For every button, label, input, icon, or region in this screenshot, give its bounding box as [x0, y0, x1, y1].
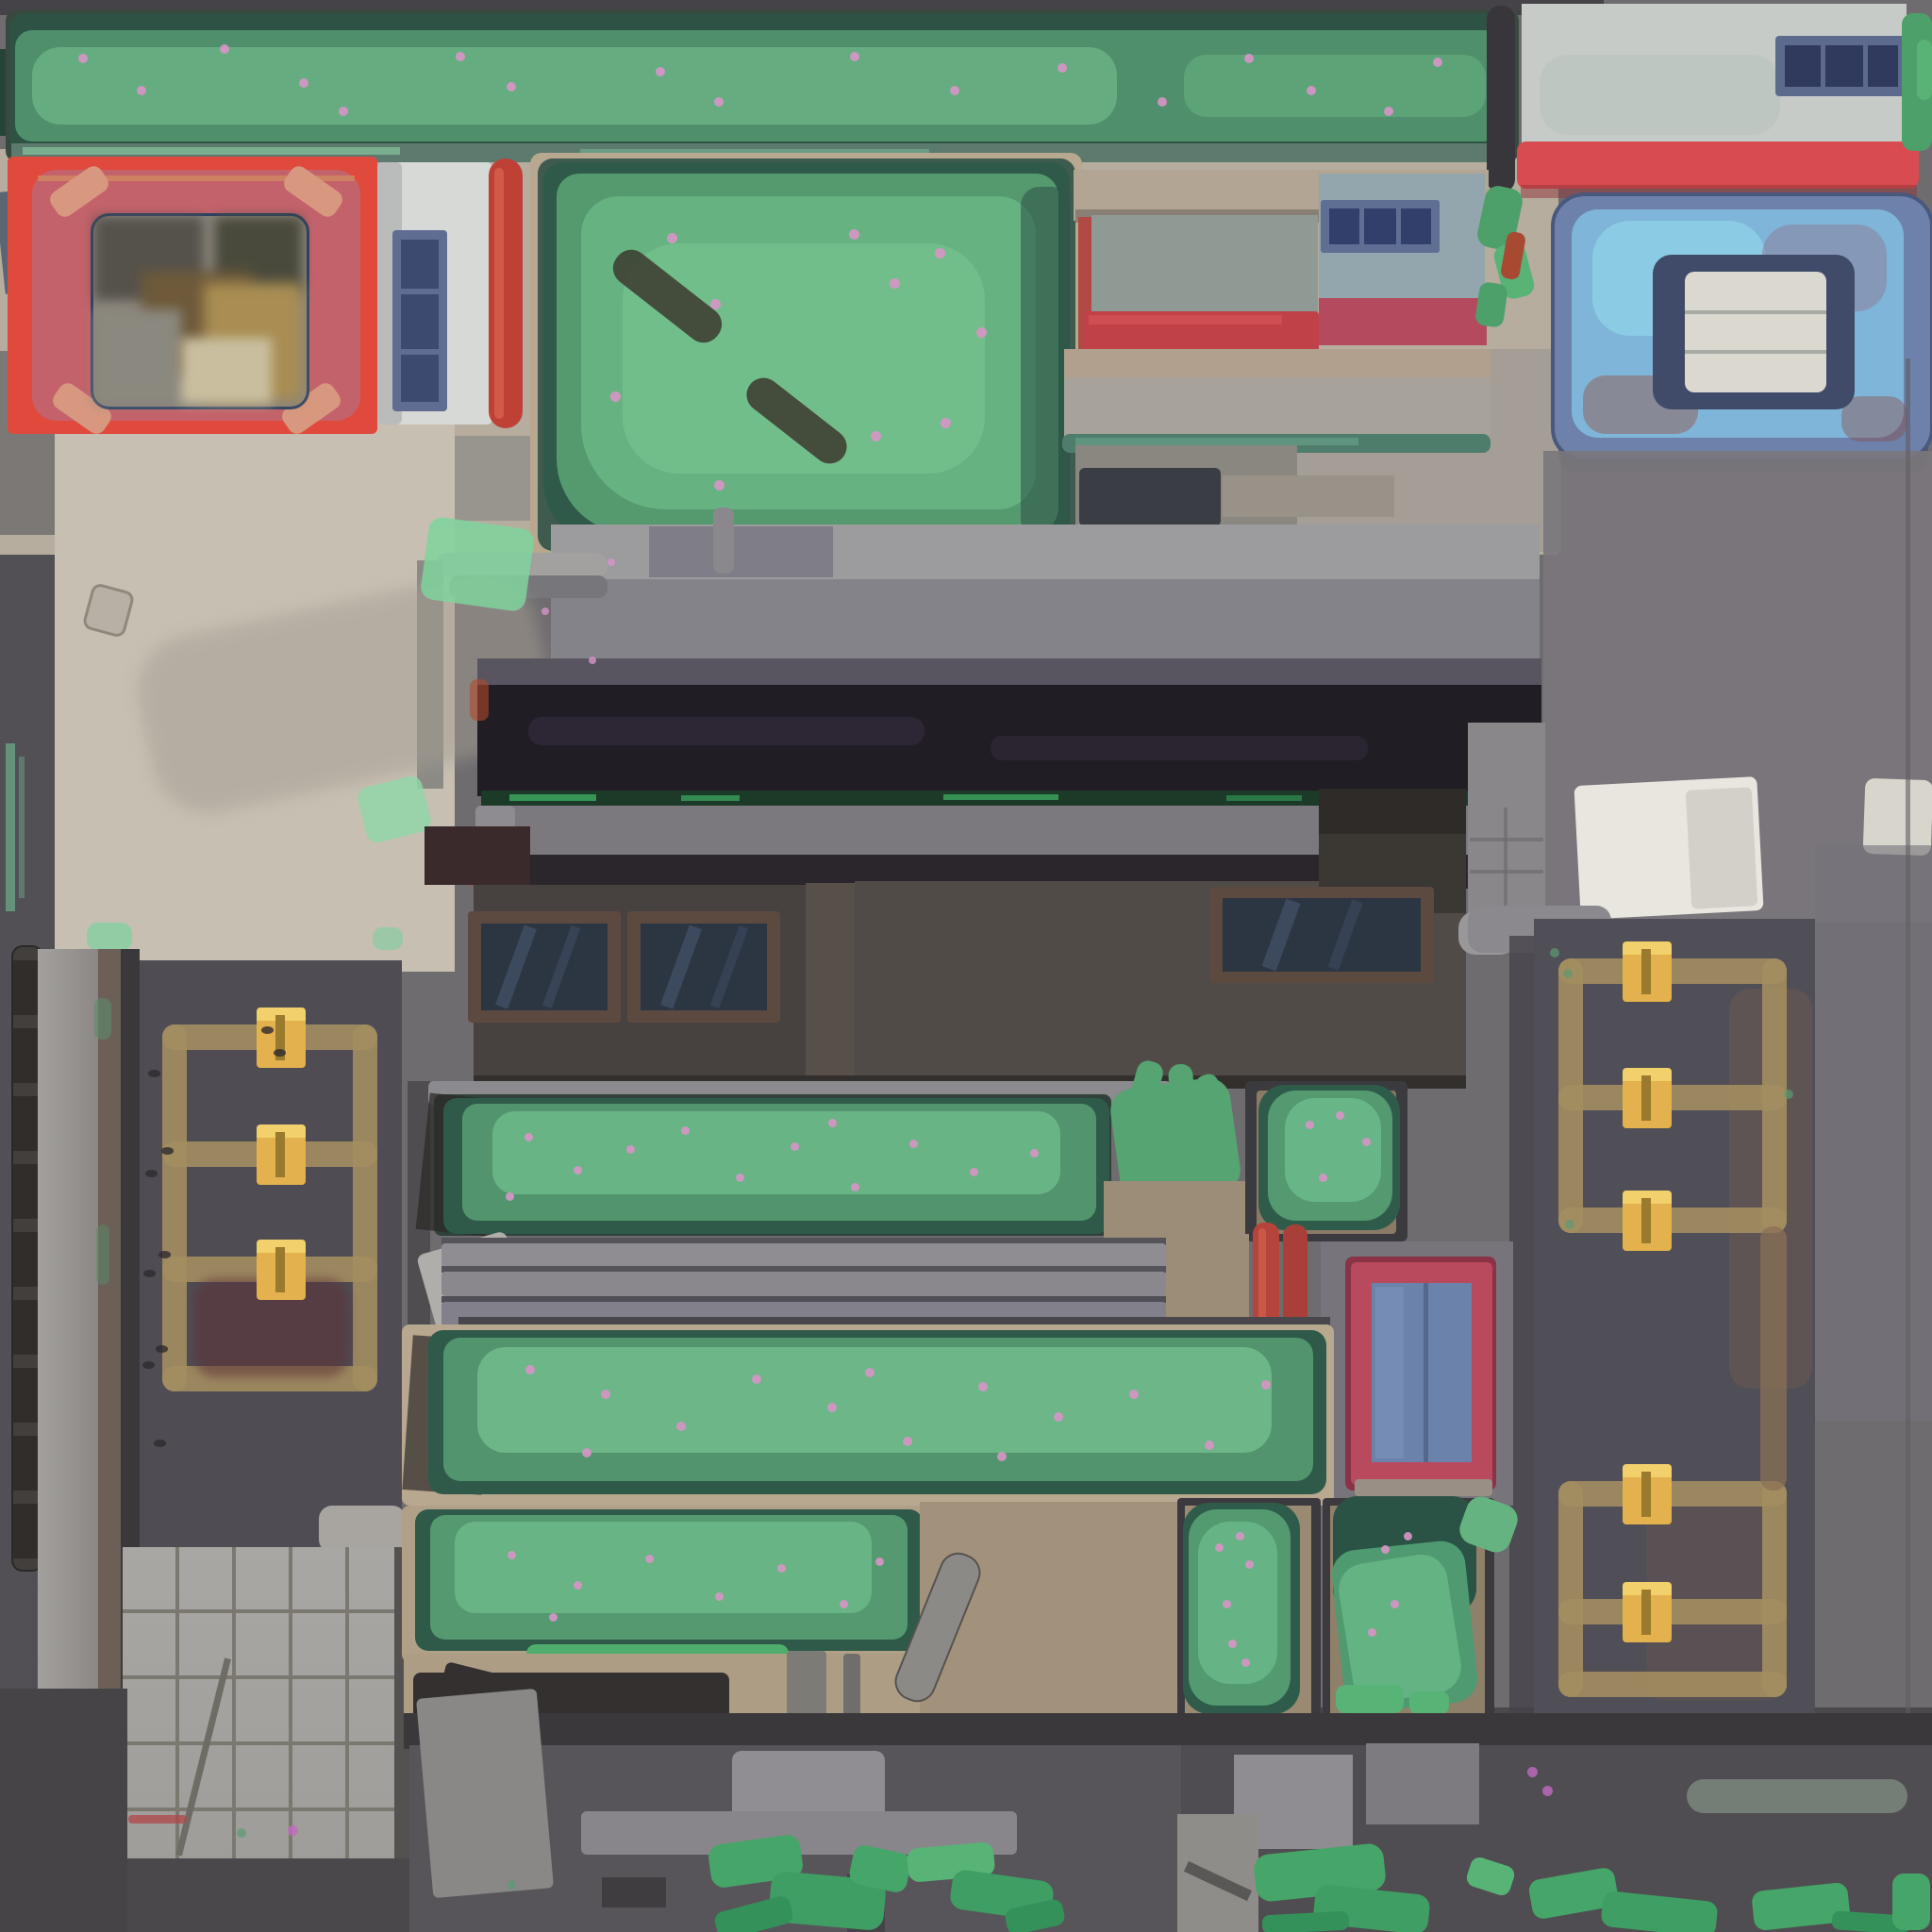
flower-dot-rowA	[506, 1192, 514, 1201]
rowA-hedge-light	[492, 1111, 1060, 1194]
flower-dot-top-hedge	[1244, 54, 1254, 63]
lp-latch-3-slit	[275, 1247, 285, 1292]
petal-dot-roof	[541, 608, 549, 615]
flower-dot-smallbush	[1336, 1111, 1344, 1120]
flower-dot-rowC	[840, 1600, 848, 1608]
flower-dot-rowB	[752, 1374, 761, 1384]
red-bar-1	[1253, 1223, 1279, 1332]
rail-2	[441, 1272, 1166, 1296]
mint-pipe-1	[6, 743, 15, 911]
lp-outline-v-l	[162, 1024, 187, 1391]
wb-window-pane-2	[1825, 45, 1863, 87]
flower-dot-bushB	[1368, 1628, 1376, 1637]
rp-latch-3-slit	[1641, 1198, 1651, 1243]
flower-dot-top-hedge	[339, 107, 348, 116]
building2-pane-2	[1364, 208, 1396, 244]
flower-dot-big-hedge	[714, 480, 724, 491]
bird-marks	[154, 1440, 166, 1447]
moss-dots	[1563, 969, 1573, 978]
flower-dot-rowA	[626, 1145, 635, 1154]
rp-outline-v-l1	[1558, 958, 1583, 1233]
flower-dot-top-hedge	[1058, 63, 1067, 73]
utility-pane-3	[401, 355, 439, 402]
window3-glass	[1223, 898, 1421, 972]
bl-corner-dark	[0, 1689, 127, 1932]
flower-dot-big-hedge	[890, 278, 900, 289]
center-roof-notch	[649, 526, 833, 577]
wb-red-stripe	[1517, 142, 1919, 189]
flower-dot-rowB	[582, 1448, 591, 1457]
slit-dash-3	[943, 794, 1058, 800]
dark-crate	[1079, 468, 1221, 526]
flower-dot-bushA	[1236, 1532, 1244, 1541]
flower-dot-rowA	[791, 1142, 799, 1151]
flower-dot-top-hedge	[950, 86, 959, 95]
bushB-bit-2	[1409, 1691, 1449, 1714]
petal-dot-roof	[608, 558, 615, 566]
rowB-hedge-light	[477, 1347, 1272, 1453]
flower-dot-rowB	[1054, 1412, 1063, 1422]
maroon-corner	[425, 826, 530, 885]
flower-dot-rowB	[1261, 1380, 1271, 1390]
flower-dot-bushA	[1215, 1543, 1224, 1552]
hatch-panel	[1685, 272, 1826, 392]
flower-dot-top-hedge	[1158, 97, 1167, 107]
flower-dot-rowC	[875, 1557, 884, 1566]
flower-dot-rowB	[525, 1365, 535, 1374]
flower-dot-rowC	[645, 1555, 654, 1563]
left-brown-strip	[98, 949, 123, 1692]
flower-dot-rowB	[903, 1437, 912, 1446]
roof-pole	[1487, 6, 1515, 192]
flower-dot-top-hedge	[507, 82, 516, 92]
petal-dot-misc	[1542, 1786, 1553, 1796]
dark-wall-pillar	[806, 883, 857, 1085]
flower-dot-top-hedge	[714, 97, 724, 107]
right-column-light	[1815, 845, 1932, 1421]
petal-dot-roof	[589, 657, 596, 664]
hatch-line-2	[1685, 350, 1826, 354]
bird-marks	[145, 1170, 158, 1177]
flower-dot-big-hedge	[610, 391, 621, 402]
cream-patch-right	[1863, 778, 1932, 856]
moss-dots	[1565, 1220, 1574, 1229]
bird-marks	[158, 1251, 171, 1258]
leaf-10	[1262, 1911, 1350, 1932]
flower-dot-rowB	[601, 1390, 610, 1399]
paper-tarp-fold	[1686, 787, 1757, 908]
blue-skylight-stain-2	[1841, 396, 1907, 441]
flower-dot-rowC	[549, 1613, 558, 1622]
utility-pane-1	[401, 240, 439, 289]
petal-dot-misc	[1527, 1767, 1538, 1777]
pillar-tile-line-h1	[1470, 838, 1543, 841]
flower-dot-top-hedge	[137, 86, 146, 95]
flower-dot-big-hedge	[710, 299, 721, 309]
rp-outline-v-r2	[1762, 1481, 1787, 1697]
flower-dot-big-hedge	[849, 229, 859, 240]
wb-window-pane-1	[1785, 45, 1821, 87]
rp-outline-h1	[1558, 958, 1787, 984]
flower-dot-top-hedge	[1307, 86, 1316, 95]
wb-window-pane-3	[1868, 45, 1898, 87]
flower-dot-rowB	[827, 1403, 837, 1412]
rp-outline-v-l2	[1558, 1481, 1583, 1697]
white-building-tint	[1540, 55, 1780, 135]
rp-outline-h2	[1558, 1085, 1787, 1110]
flower-dot-rowB	[997, 1452, 1007, 1461]
leaf-hand-finger-2	[1168, 1063, 1197, 1127]
below-grid-dark	[123, 1858, 409, 1932]
red-bar-2	[1283, 1224, 1307, 1332]
bushA-light	[1198, 1522, 1277, 1684]
bird-marks	[148, 1070, 160, 1077]
petal-dot-misc	[288, 1825, 298, 1836]
lp-outline-v-r	[353, 1024, 377, 1391]
red-window-sill	[1355, 1479, 1492, 1496]
flower-dot-bushA	[1241, 1658, 1250, 1667]
pillar-tile-line-h2	[1470, 870, 1543, 874]
flower-dot-top-hedge	[1433, 58, 1442, 67]
bird-marks	[274, 1049, 286, 1057]
flower-dot-top-hedge	[78, 54, 88, 63]
left-wall-strip	[38, 949, 98, 1692]
flower-dot-rowB	[1129, 1390, 1139, 1399]
bird-marks	[142, 1361, 155, 1369]
flower-dot-rowA	[736, 1174, 744, 1182]
mint-pipe-2	[19, 757, 25, 898]
moss-streak-2	[96, 1224, 109, 1285]
flower-dot-big-hedge	[935, 248, 945, 258]
skylight-interior-cream	[181, 338, 272, 404]
bottom-edge-line	[404, 1713, 1932, 1749]
flower-dot-rowC	[574, 1581, 582, 1590]
bottom-trap-slab	[416, 1689, 554, 1898]
rp-latch-5-slit	[1641, 1590, 1651, 1635]
big-hedge-right-shade	[1021, 187, 1070, 538]
flower-dot-top-hedge	[220, 44, 229, 54]
slit-dash-2	[681, 795, 740, 801]
flower-dot-big-hedge	[941, 418, 951, 428]
midtop-ledge	[1064, 349, 1491, 379]
green-patch-1	[419, 516, 535, 613]
flower-dot-smallbush	[1362, 1138, 1371, 1146]
flower-dot-rowA	[909, 1140, 918, 1148]
red-window-glass-highlight	[1375, 1287, 1404, 1458]
flower-dot-top-hedge	[656, 67, 665, 76]
roof-pipe	[713, 508, 734, 574]
flower-dot-smallbush	[1306, 1121, 1314, 1129]
rp-outline-v-r1	[1762, 958, 1787, 1233]
red-pipe-highlight	[494, 168, 504, 419]
flower-dot-bushA	[1228, 1640, 1237, 1648]
ember-glow-1	[470, 679, 489, 721]
center-roof-slab-2	[551, 579, 1540, 670]
flower-dot-rowA	[525, 1133, 533, 1141]
flower-dot-bushA	[1245, 1560, 1254, 1569]
bird-marks	[143, 1270, 156, 1277]
flower-dot-bushB	[1391, 1600, 1399, 1608]
building1-stripe-highlight	[1089, 315, 1282, 325]
rp-outline-v-brown	[1760, 1226, 1787, 1491]
left-gray-tab	[319, 1506, 406, 1553]
flower-dot-big-hedge	[871, 431, 881, 441]
red-window-pane-line	[1424, 1283, 1428, 1462]
red-bar-highlight	[1258, 1228, 1266, 1323]
hatch-line-1	[1685, 310, 1826, 314]
smallbush-light	[1285, 1098, 1381, 1202]
right-column-seam	[1906, 358, 1910, 1783]
flower-dot-top-hedge	[1384, 107, 1393, 116]
flower-dot-rowC	[715, 1592, 724, 1601]
bottom-ledge	[602, 1877, 666, 1907]
flower-dot-rowB	[676, 1422, 686, 1431]
right-overhang-top	[1319, 789, 1466, 834]
bushB-bit-1	[1336, 1685, 1404, 1713]
bird-marks	[161, 1147, 174, 1155]
flower-dot-big-hedge	[667, 233, 677, 243]
flower-dot-bushB	[1404, 1532, 1412, 1541]
flower-dot-rowC	[508, 1551, 516, 1559]
flower-dot-big-hedge	[976, 327, 987, 338]
moss-dots	[1784, 1090, 1793, 1099]
building1-face	[1091, 215, 1318, 317]
slit-dash-1	[509, 794, 596, 801]
flower-dot-rowC	[777, 1564, 786, 1573]
step-light	[1223, 475, 1394, 517]
slit-dash-4	[1226, 795, 1302, 801]
rowC-hedge-light	[455, 1522, 872, 1613]
red-paint-dash	[128, 1815, 187, 1824]
building2-pane-3	[1401, 208, 1431, 244]
ground-post-2	[843, 1654, 860, 1722]
rail-1	[441, 1243, 1166, 1268]
mint-patch-1	[87, 923, 132, 951]
skylight-interior-gray	[94, 309, 181, 404]
flower-dot-rowA	[681, 1126, 690, 1135]
awning-purple-1	[528, 717, 924, 745]
bushB-light	[1335, 1551, 1465, 1706]
flower-dot-top-hedge	[456, 52, 465, 61]
lp-latch-2-slit	[275, 1132, 285, 1177]
awning-purple-2	[991, 736, 1368, 760]
flower-dot-rowA	[970, 1168, 978, 1176]
rp-latch-1-slit	[1641, 949, 1651, 994]
building2-crimson-stripe	[1319, 298, 1487, 345]
flower-dot-bushA	[1223, 1600, 1231, 1608]
flower-dot-smallbush	[1319, 1174, 1327, 1182]
flower-dot-top-hedge	[850, 52, 859, 61]
bird-marks	[156, 1345, 168, 1353]
map-stage	[0, 0, 1932, 1932]
rp-latch-4-slit	[1641, 1472, 1651, 1517]
flower-dot-rowB	[865, 1368, 874, 1377]
utility-pane-2	[401, 294, 439, 349]
rp-outline-h4	[1558, 1481, 1787, 1507]
flower-dot-rowA	[828, 1119, 837, 1127]
teal-rail-highlight	[1075, 438, 1358, 445]
bottom-block-2	[1366, 1743, 1479, 1824]
rp-outline-h5	[1558, 1599, 1787, 1624]
moss-dots	[507, 1880, 516, 1890]
flower-dot-rowA	[851, 1183, 859, 1191]
moss-dots	[1550, 948, 1559, 958]
corner-sprig-2	[1917, 40, 1932, 100]
flower-dot-bushB	[1381, 1545, 1390, 1554]
flower-dot-rowA	[1030, 1149, 1039, 1158]
leaf-16	[1892, 1874, 1930, 1930]
mint-patch-2	[373, 927, 403, 950]
building2-pane-1	[1329, 208, 1359, 244]
window2-glass	[641, 924, 767, 1010]
flower-dot-top-hedge	[299, 78, 308, 88]
flower-dot-rowB	[1205, 1441, 1214, 1450]
moss-streak-1	[94, 998, 111, 1040]
moss-dots	[237, 1828, 246, 1838]
rp-latch-2-slit	[1641, 1075, 1651, 1121]
pillar-tile-line-v	[1504, 808, 1507, 906]
ground-post-1	[787, 1651, 826, 1723]
flower-dot-rowA	[574, 1166, 582, 1174]
bird-marks	[261, 1026, 274, 1034]
flower-dot-rowB	[978, 1382, 988, 1391]
bottom-smear	[1687, 1779, 1907, 1813]
rail-highlight-1	[23, 147, 400, 155]
rp-outline-bottom	[1558, 1672, 1787, 1697]
rp-outline-h3	[1558, 1207, 1787, 1233]
